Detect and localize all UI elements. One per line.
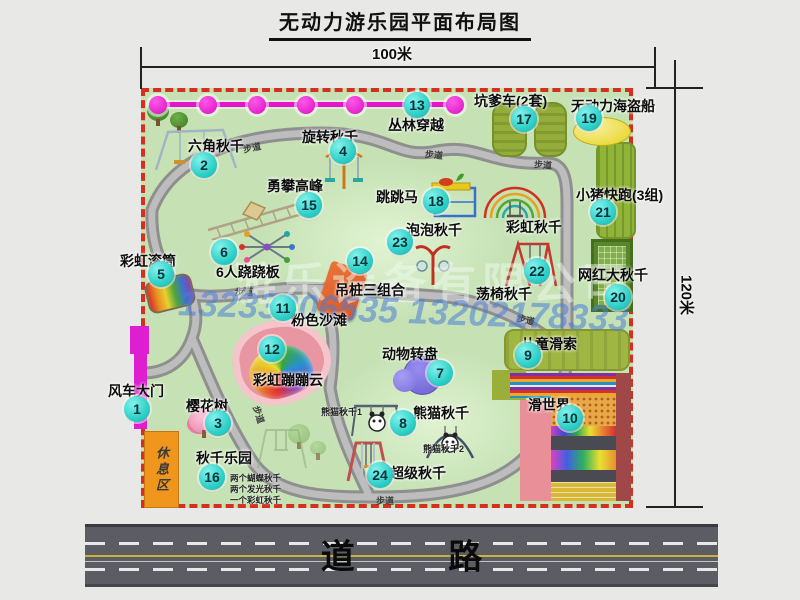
item-label: 泡泡秋千 xyxy=(406,220,462,240)
page-title: 无动力游乐园平面布局图 xyxy=(269,6,531,41)
animal-carousel-icon xyxy=(393,369,416,392)
dimension-tick-bottom xyxy=(646,506,703,508)
dimension-line-horizontal xyxy=(141,66,655,68)
rest-area-label: 休息区 xyxy=(152,446,171,494)
path-label: 步道 xyxy=(424,147,443,162)
dimension-width-label: 100米 xyxy=(372,43,412,64)
slide-world xyxy=(492,368,638,504)
item-label: 坑爹车(2套) xyxy=(474,91,547,111)
item-badge: 4 xyxy=(330,138,356,164)
item-badge: 17 xyxy=(511,106,537,132)
item-badge: 16 xyxy=(199,464,225,490)
panda-swing-1-label: 熊猫秋千1 xyxy=(321,405,362,418)
rainbow-swing-icon xyxy=(480,176,550,220)
zipline-node xyxy=(346,96,364,114)
item-badge: 14 xyxy=(347,248,373,274)
item-badge: 5 xyxy=(148,261,174,287)
rainbow-swing-label: 彩虹秋千 xyxy=(506,217,562,237)
swing-park-note: 一个彩虹秋千 xyxy=(230,494,281,506)
slide-band-gradient xyxy=(551,450,616,470)
dimension-tick-right xyxy=(654,47,656,89)
zipline-node xyxy=(199,96,217,114)
item-label: 超级秋千 xyxy=(390,463,446,483)
zipline-node xyxy=(446,96,464,114)
zipline-node xyxy=(248,96,266,114)
item-badge: 2 xyxy=(191,152,217,178)
path-label: 步道 xyxy=(376,494,394,507)
item-badge: 6 xyxy=(211,239,237,265)
item-badge: 20 xyxy=(605,284,631,310)
item-label: 跳跳马 xyxy=(376,187,418,207)
item-badge: 21 xyxy=(590,199,616,225)
item-badge: 24 xyxy=(367,462,393,488)
zipline-node xyxy=(149,96,167,114)
item-badge: 12 xyxy=(259,336,285,362)
item-label: 吊桩三组合 xyxy=(335,280,405,300)
item-badge: 22 xyxy=(524,258,550,284)
item-badge: 7 xyxy=(427,360,453,386)
item-label: 荡椅秋千 xyxy=(476,284,532,304)
dimension-tick-left xyxy=(140,47,142,89)
item-badge: 9 xyxy=(515,342,541,368)
dimension-height-label: 120米 xyxy=(677,275,698,315)
path-label: 步道 xyxy=(534,157,553,171)
item-label: 小猪快跑(3组) xyxy=(576,185,663,205)
item-label: 6人跷跷板 xyxy=(216,262,280,282)
item-badge: 10 xyxy=(557,405,583,431)
windmill-gate xyxy=(130,326,149,354)
item-badge: 18 xyxy=(423,188,449,214)
slide-band-dark xyxy=(551,470,616,482)
item-label: 熊猫秋千 xyxy=(413,403,469,423)
panda-swing-2-label: 熊猫秋千2 xyxy=(423,442,464,455)
item-badge: 11 xyxy=(270,295,296,321)
road-label: 道 路 xyxy=(279,529,524,578)
dimension-tick-top xyxy=(646,87,703,89)
tree-icon xyxy=(310,441,326,460)
item-label: 网红大秋千 xyxy=(578,265,648,285)
park-layout-page: { "title": "无动力游乐园平面布局图", "dimensions": … xyxy=(0,0,800,600)
item-label: 彩虹蹦蹦云 xyxy=(253,370,323,390)
item-badge: 1 xyxy=(124,396,150,422)
item-label: 粉色沙滩 xyxy=(291,310,347,330)
item-badge: 23 xyxy=(387,229,413,255)
item-label: 丛林穿越 xyxy=(388,115,444,135)
item-badge: 19 xyxy=(576,105,602,131)
item-label: 动物转盘 xyxy=(382,344,438,364)
item-badge: 15 xyxy=(296,192,322,218)
item-badge: 13 xyxy=(404,92,430,118)
slide-band-dark xyxy=(551,436,616,450)
item-badge: 8 xyxy=(390,410,416,436)
zipline-node xyxy=(297,96,315,114)
slide-block-pink xyxy=(520,400,551,501)
item-badge: 3 xyxy=(205,410,231,436)
road: 道 路 xyxy=(85,524,718,587)
slide-band-wave xyxy=(551,482,616,501)
swing-park-sketch-icon xyxy=(252,420,312,470)
rest-area: 休息区 xyxy=(144,431,179,508)
slide-strip-maroon xyxy=(616,373,631,501)
